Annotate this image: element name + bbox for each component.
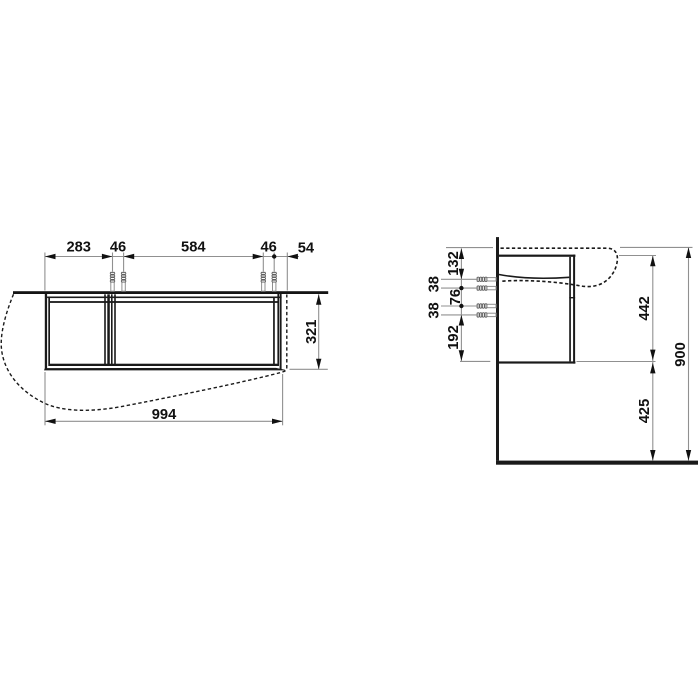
svg-text:38: 38 [427,276,443,292]
svg-text:46: 46 [110,239,126,255]
svg-text:192: 192 [446,325,462,350]
svg-text:76: 76 [448,289,464,305]
svg-text:584: 584 [181,239,206,255]
svg-text:900: 900 [673,342,689,367]
svg-text:38: 38 [427,302,443,318]
svg-text:132: 132 [446,251,462,276]
svg-text:46: 46 [261,239,277,255]
svg-text:54: 54 [298,240,315,256]
svg-text:321: 321 [304,320,320,345]
svg-text:283: 283 [66,239,91,255]
svg-text:442: 442 [637,296,653,321]
svg-text:425: 425 [637,399,653,424]
svg-text:994: 994 [152,407,177,423]
